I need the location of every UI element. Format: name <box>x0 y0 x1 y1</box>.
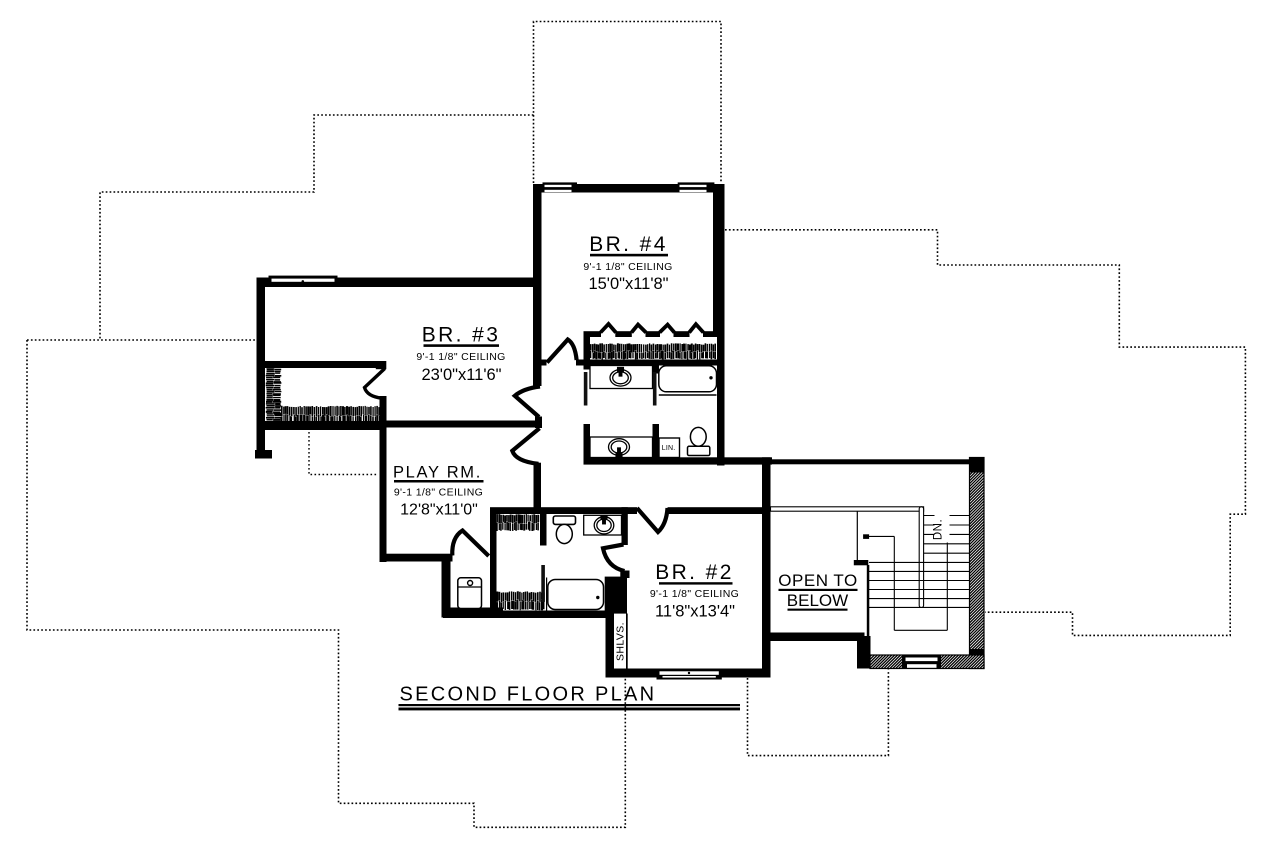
svg-text:SHLVS.: SHLVS. <box>614 622 626 661</box>
svg-text:LIN.: LIN. <box>662 445 676 452</box>
svg-text:DN.: DN. <box>933 519 945 540</box>
svg-text:BR. #2: BR. #2 <box>655 561 734 584</box>
svg-text:9'-1 1/8" CEILING: 9'-1 1/8" CEILING <box>416 351 505 363</box>
svg-text:BR. #3: BR. #3 <box>422 324 501 347</box>
svg-text:SECOND FLOOR PLAN: SECOND FLOOR PLAN <box>400 683 657 705</box>
svg-text:BELOW: BELOW <box>787 591 848 610</box>
svg-text:OPEN TO: OPEN TO <box>778 571 857 590</box>
svg-text:9'-1 1/8" CEILING: 9'-1 1/8" CEILING <box>650 588 739 600</box>
svg-text:23'0"x11'6": 23'0"x11'6" <box>421 366 501 384</box>
svg-text:9'-1 1/8" CEILING: 9'-1 1/8" CEILING <box>394 487 483 499</box>
svg-text:12'8"x11'0": 12'8"x11'0" <box>400 502 478 519</box>
svg-text:BR. #4: BR. #4 <box>589 233 668 256</box>
svg-text:11'8"x13'4": 11'8"x13'4" <box>655 603 735 621</box>
svg-text:15'0"x11'8": 15'0"x11'8" <box>588 275 668 293</box>
svg-text:PLAY RM.: PLAY RM. <box>393 463 482 481</box>
svg-text:9'-1 1/8" CEILING: 9'-1 1/8" CEILING <box>583 261 672 273</box>
